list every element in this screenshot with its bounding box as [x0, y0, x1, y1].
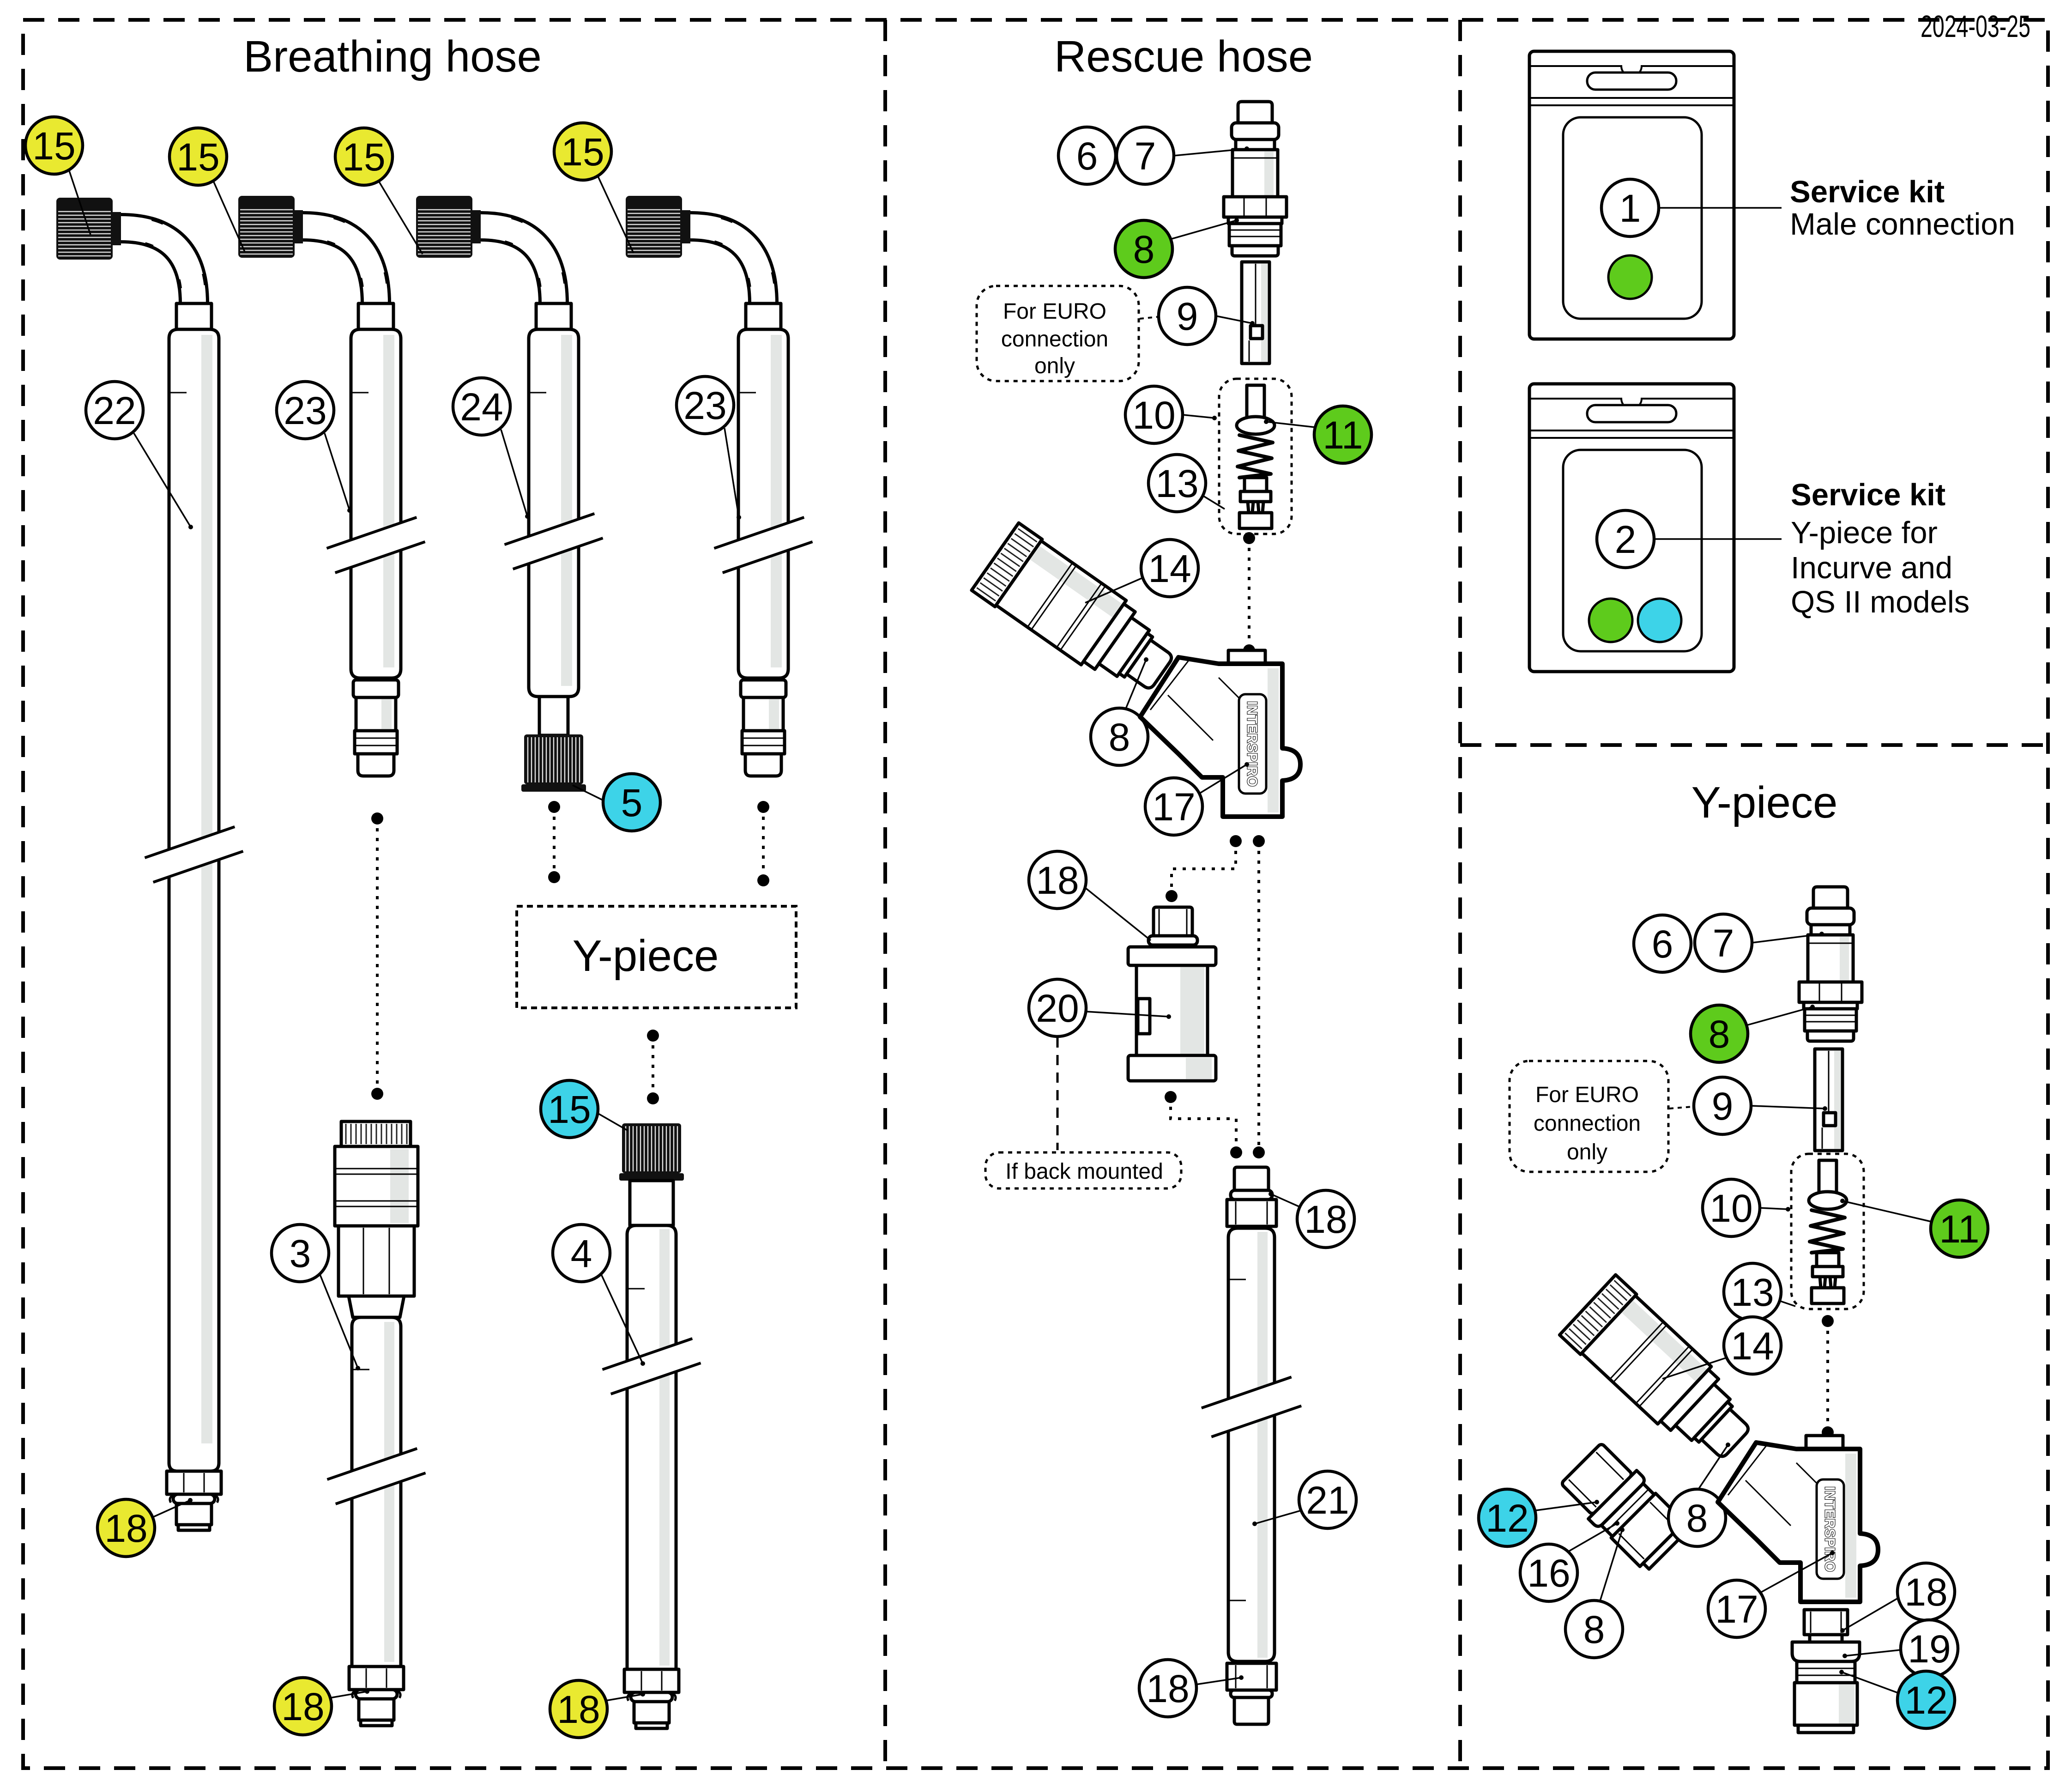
svg-text:Y-piece for: Y-piece for [1791, 515, 1938, 550]
svg-text:8: 8 [1109, 715, 1130, 759]
svg-text:18: 18 [1146, 1667, 1189, 1710]
svg-text:2: 2 [1615, 518, 1637, 561]
svg-text:15: 15 [32, 124, 75, 168]
svg-text:10: 10 [1132, 394, 1175, 437]
svg-text:connection: connection [1001, 327, 1108, 352]
svg-text:only: only [1567, 1140, 1607, 1164]
svg-text:18: 18 [104, 1507, 147, 1550]
svg-text:13: 13 [1155, 462, 1198, 505]
svg-text:1: 1 [1619, 187, 1641, 230]
svg-text:QS II models: QS II models [1791, 585, 1969, 619]
svg-text:21: 21 [1306, 1479, 1349, 1522]
svg-text:15: 15 [342, 135, 385, 179]
svg-text:5: 5 [621, 781, 643, 824]
svg-text:15: 15 [548, 1088, 591, 1131]
svg-text:17: 17 [1152, 785, 1195, 829]
svg-text:18: 18 [1036, 859, 1079, 902]
svg-text:15: 15 [561, 130, 604, 174]
svg-text:18: 18 [1904, 1570, 1947, 1614]
svg-text:For EURO: For EURO [1535, 1083, 1639, 1107]
svg-text:13: 13 [1731, 1271, 1774, 1314]
svg-text:23: 23 [683, 384, 726, 427]
svg-text:14: 14 [1731, 1324, 1774, 1368]
svg-text:9: 9 [1712, 1085, 1734, 1128]
svg-text:6: 6 [1076, 134, 1098, 178]
svg-text:12: 12 [1486, 1497, 1528, 1540]
svg-text:3: 3 [290, 1232, 311, 1275]
svg-text:23: 23 [284, 389, 326, 432]
svg-text:20: 20 [1036, 987, 1079, 1030]
svg-text:Rescue hose: Rescue hose [1054, 32, 1313, 81]
svg-text:7: 7 [1135, 134, 1156, 178]
svg-text:10: 10 [1710, 1187, 1752, 1230]
svg-text:8: 8 [1709, 1012, 1730, 1056]
svg-text:12: 12 [1904, 1679, 1947, 1722]
svg-text:16: 16 [1527, 1552, 1570, 1595]
svg-text:18: 18 [1304, 1198, 1347, 1241]
svg-text:14: 14 [1148, 547, 1191, 590]
svg-text:For EURO: For EURO [1003, 299, 1106, 324]
svg-text:17: 17 [1715, 1588, 1758, 1631]
svg-text:7: 7 [1713, 921, 1734, 965]
svg-text:8: 8 [1133, 228, 1155, 271]
svg-text:connection: connection [1534, 1111, 1641, 1136]
svg-text:6: 6 [1652, 922, 1673, 966]
svg-text:Breathing hose: Breathing hose [243, 32, 542, 81]
svg-text:Male connection: Male connection [1790, 207, 2015, 242]
svg-text:2024-03-25: 2024-03-25 [1921, 9, 2030, 44]
svg-text:only: only [1034, 354, 1075, 378]
svg-text:9: 9 [1177, 295, 1198, 338]
svg-text:19: 19 [1908, 1627, 1951, 1671]
svg-text:8: 8 [1583, 1608, 1605, 1651]
svg-text:Incurve and: Incurve and [1791, 551, 1952, 585]
svg-text:If back mounted: If back mounted [1005, 1159, 1163, 1184]
svg-text:Service kit: Service kit [1791, 478, 1945, 512]
svg-text:11: 11 [1323, 413, 1363, 457]
svg-text:18: 18 [557, 1688, 600, 1731]
svg-text:4: 4 [571, 1232, 592, 1275]
svg-text:18: 18 [281, 1685, 324, 1728]
svg-text:22: 22 [93, 389, 136, 432]
svg-text:15: 15 [176, 135, 219, 179]
svg-text:8: 8 [1686, 1497, 1708, 1540]
svg-text:Service kit: Service kit [1790, 175, 1945, 209]
svg-text:24: 24 [460, 385, 503, 429]
svg-text:11: 11 [1939, 1207, 1979, 1251]
svg-text:Y-piece: Y-piece [573, 931, 719, 981]
svg-text:Y-piece: Y-piece [1691, 778, 1838, 827]
